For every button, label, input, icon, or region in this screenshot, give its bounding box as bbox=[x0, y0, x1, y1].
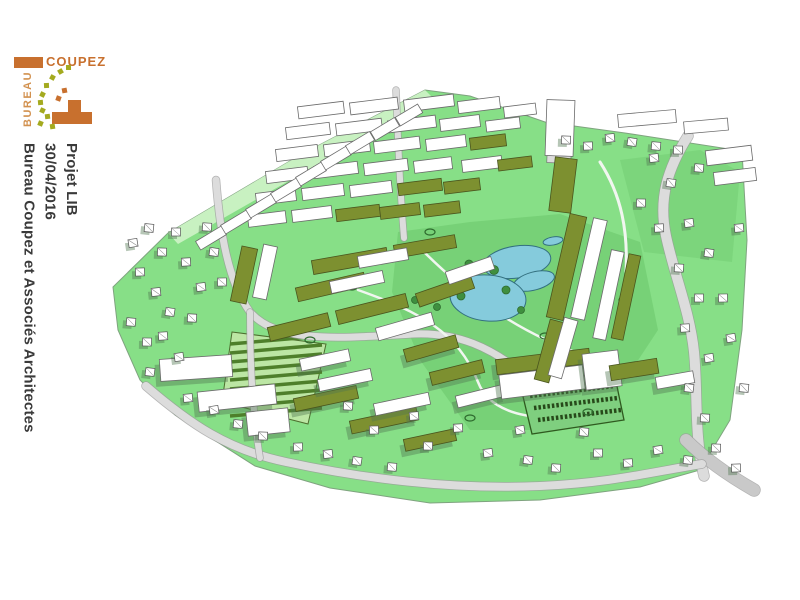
logo-square bbox=[55, 95, 61, 101]
logo-bar bbox=[14, 57, 43, 68]
title-line-date: 30/04/2016 bbox=[39, 143, 60, 473]
logo-square bbox=[39, 91, 46, 98]
logo-square bbox=[37, 120, 44, 127]
title-line-project: Projet LIB bbox=[61, 143, 82, 473]
building bbox=[285, 122, 330, 139]
building bbox=[545, 100, 575, 157]
building bbox=[246, 408, 290, 436]
logo-square bbox=[57, 68, 64, 75]
building bbox=[297, 101, 344, 119]
title-line-firm: Bureau Coupez et Associés Architectes bbox=[18, 143, 39, 473]
logo-square bbox=[62, 88, 68, 94]
site-rendering bbox=[0, 0, 800, 600]
logo-square bbox=[45, 114, 51, 120]
logo-word-coupez: COUPEZ bbox=[46, 55, 106, 68]
tree bbox=[502, 286, 510, 294]
logo-square bbox=[50, 124, 56, 130]
logo-square bbox=[38, 100, 43, 105]
building bbox=[684, 118, 729, 134]
logo-l-shape bbox=[52, 112, 92, 124]
tree bbox=[434, 304, 441, 311]
building bbox=[159, 355, 232, 382]
site-rendering-wrap bbox=[0, 0, 800, 600]
bureau-coupez-logo: COUPEZ BUREAU bbox=[14, 55, 106, 149]
project-title: Projet LIB 30/04/2016 Bureau Coupez et A… bbox=[18, 143, 82, 473]
tree bbox=[518, 307, 525, 314]
building bbox=[618, 109, 677, 127]
building bbox=[503, 103, 536, 118]
logo-square bbox=[44, 83, 49, 88]
logo-word-bureau: BUREAU bbox=[22, 71, 34, 127]
logo-square bbox=[49, 74, 56, 81]
logo-square bbox=[66, 65, 71, 70]
logo-square bbox=[39, 107, 46, 114]
presentation-slide: COUPEZ BUREAU Projet LIB 30/04/2016 Bure… bbox=[0, 0, 800, 600]
